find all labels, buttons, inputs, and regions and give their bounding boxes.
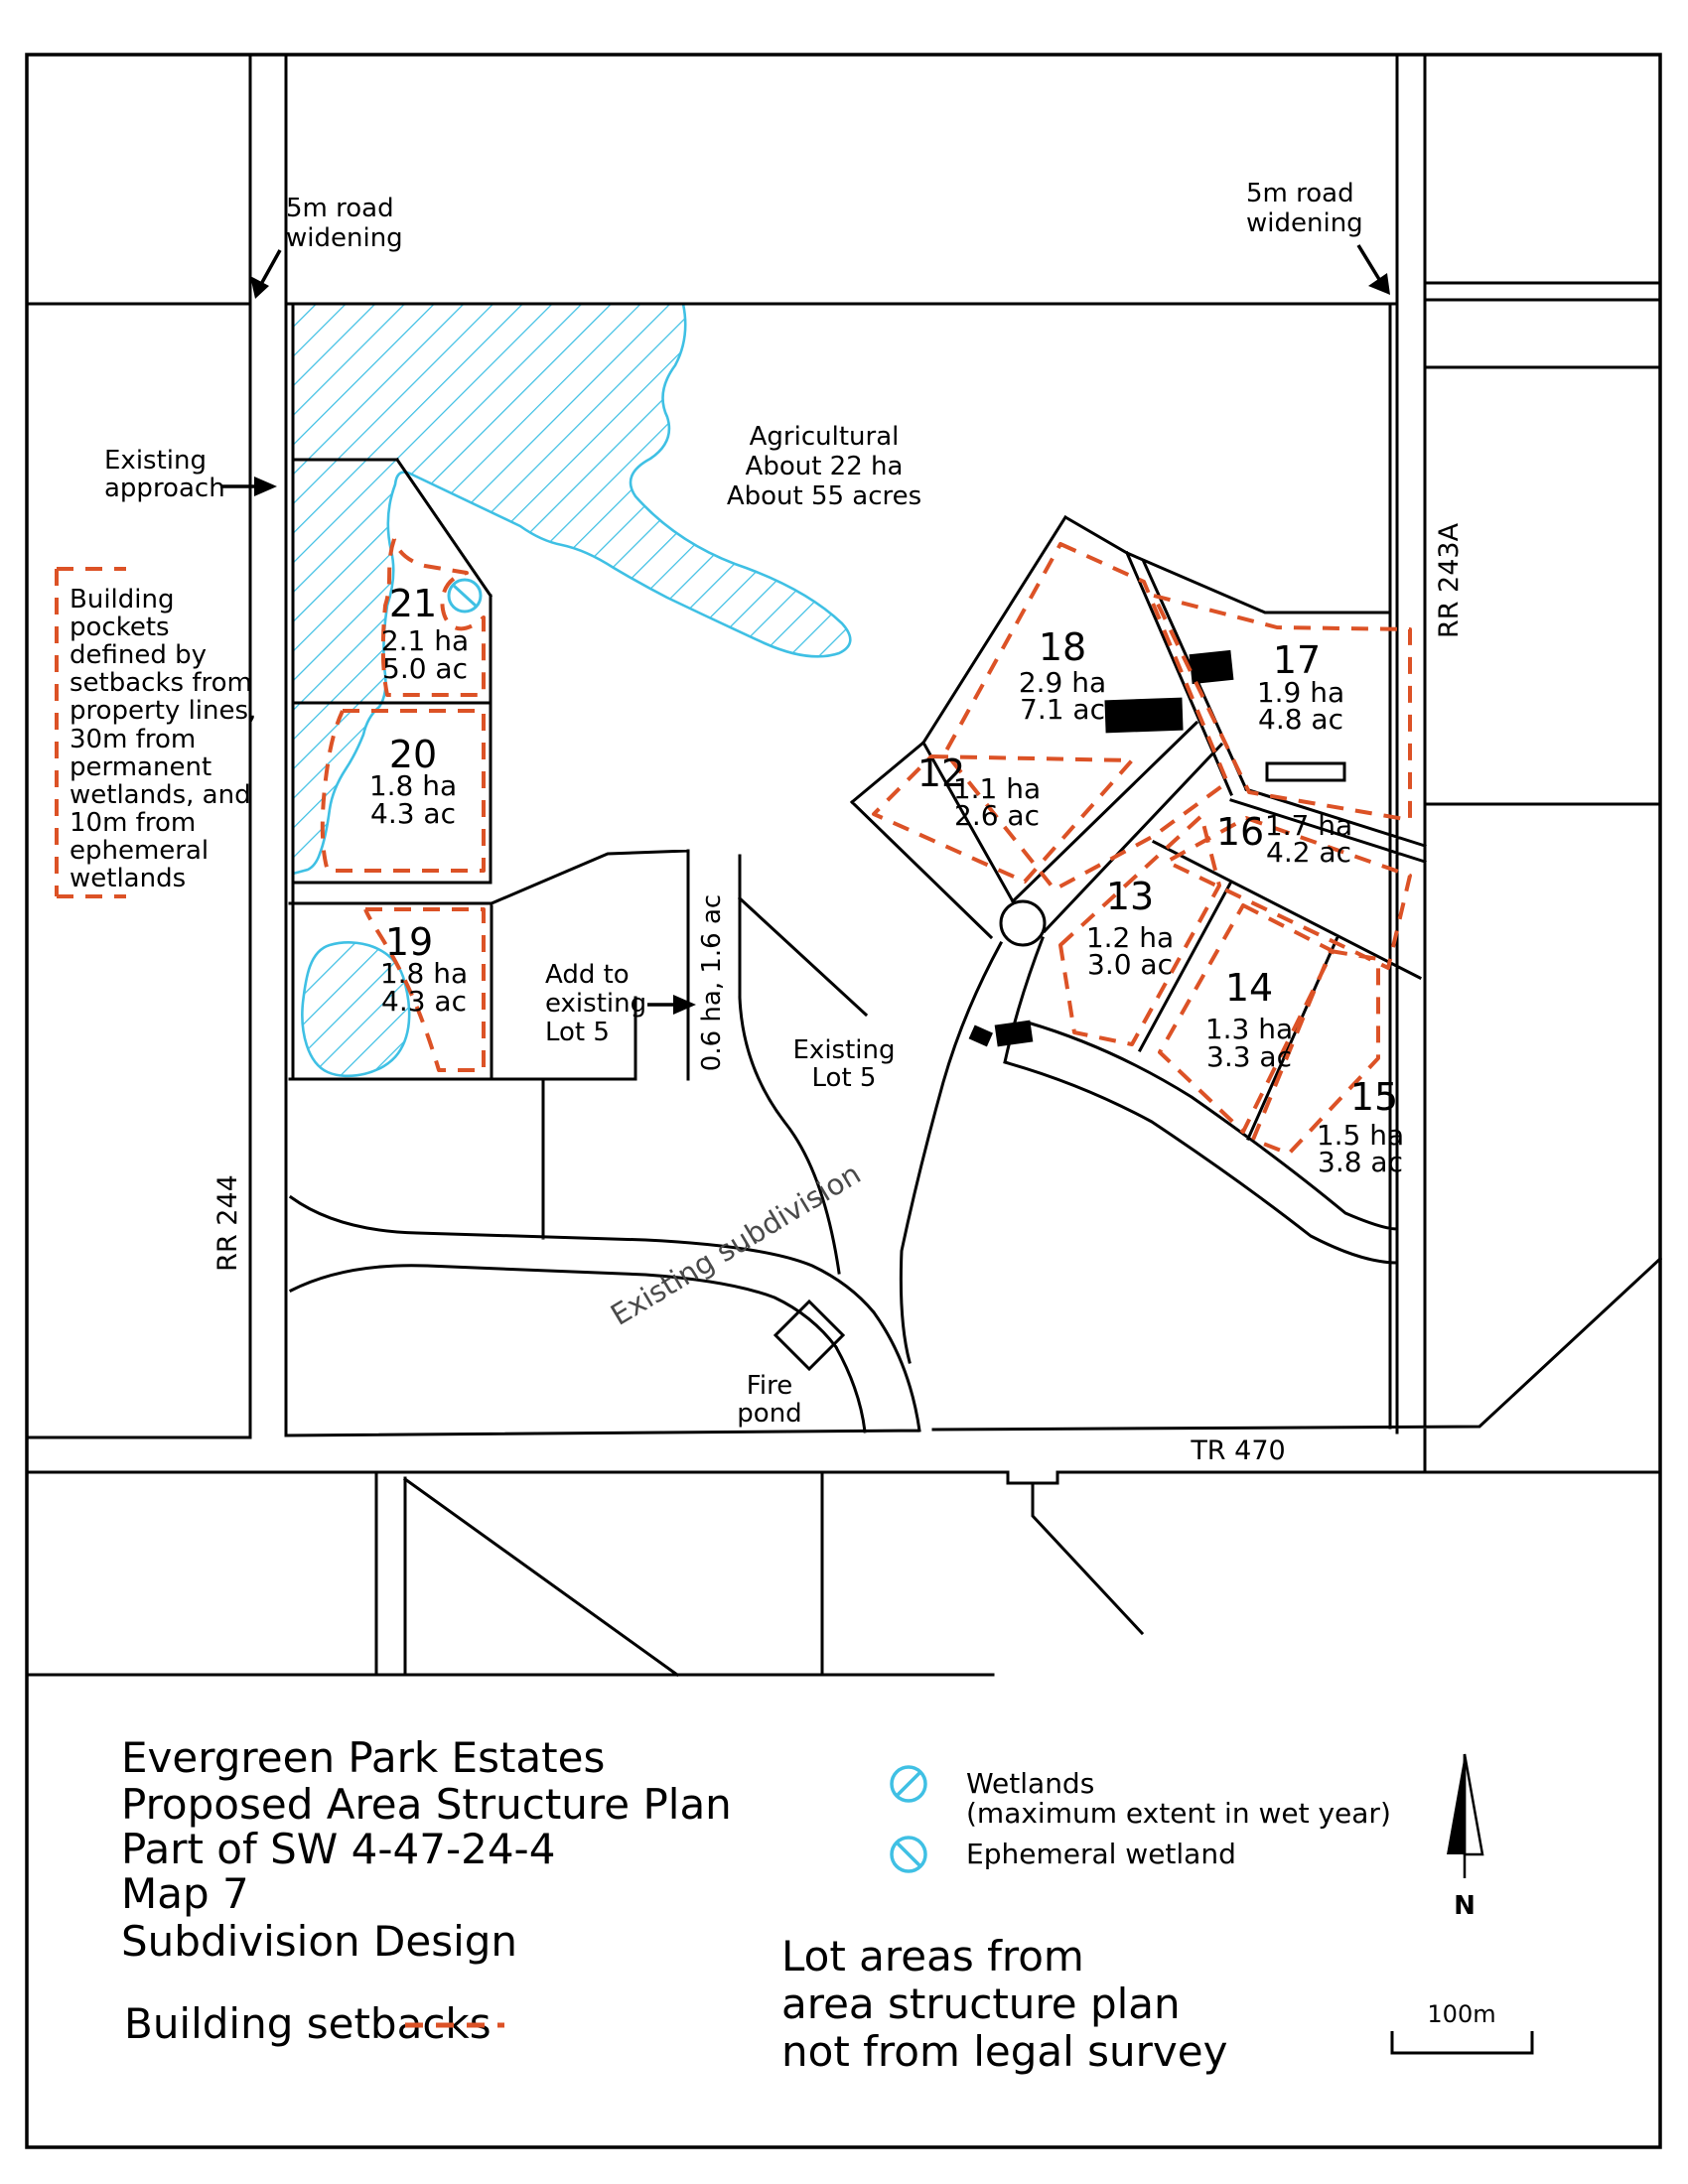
lot-labels: 21 2.1 ha 5.0 ac 20 1.8 ha 4.3 ac 19 1.8… [369,582,1404,1178]
agricultural-line1: Agricultural [750,422,900,452]
pockets-note-l11: wetlands [70,864,186,893]
lot-16-ac: 4.2 ac [1266,836,1351,869]
building-lot18-small [1190,650,1234,684]
building-lot18-large [1104,698,1183,734]
title-line3: Part of SW 4-47-24-4 [121,1825,555,1873]
road-widening-left-line2: widening [286,223,403,253]
road-label-tr470: TR 470 [1190,1435,1285,1466]
lot-20-ac: 4.3 ac [370,797,456,830]
fire-pond-line1: Fire [747,1371,792,1401]
title-line2: Proposed Area Structure Plan [121,1780,732,1829]
building-lot5-b [995,1021,1034,1047]
lot-18-ac: 7.1 ac [1020,693,1105,726]
pockets-note-l2: pockets [70,613,170,642]
lot-14-label: 14 1.3 ha 3.3 ac [1205,966,1293,1073]
lot-areas-note-line3: not from legal survey [781,2027,1227,2076]
lot-12-label: 12 1.1 ha 2.6 ac [917,751,1041,832]
road-widening-left-arrowhead [250,276,269,299]
north-arrow-filled-half [1447,1754,1465,1854]
north-arrow: N [1447,1754,1482,1921]
legend: Wetlands (maximum extent in wet year) Ep… [892,1767,1391,1871]
pockets-note-l7: permanent [70,752,211,782]
building-lot5-a [969,1025,993,1047]
fire-pond-outline [775,1301,843,1369]
lot-areas-note: Lot areas from area structure plan not f… [781,1932,1227,2076]
lot-13-label: 13 1.2 ha 3.0 ac [1086,875,1174,981]
pockets-note-l5: property lines, [70,696,256,726]
agricultural-line3: About 55 acres [727,481,921,511]
road-widening-right-line1: 5m road [1246,179,1354,208]
title-line4: Map 7 [121,1869,249,1918]
road-and-boundary-lines [27,55,1660,1675]
existing-approach-line2: approach [104,474,225,503]
pockets-note-l10: ephemeral [70,836,209,866]
lot-areas-note-line1: Lot areas from [781,1932,1084,1980]
pockets-note-l8: wetlands, and [70,780,251,810]
road-label-rr243a: RR 243A [1434,522,1465,638]
title-block: Evergreen Park Estates Proposed Area Str… [121,1733,732,2048]
existing-lot5-line2: Lot 5 [812,1063,877,1093]
road-widening-right-line2: widening [1246,208,1363,238]
pockets-note-l6: 30m from [70,725,196,754]
existing-subdivision-label: Existing subdivision [605,1157,866,1332]
add-to-lot5-line2: existing [545,989,646,1019]
add-to-lot5-arrowhead [673,995,696,1015]
lot-13-ac: 3.0 ac [1087,948,1173,981]
road-widening-left-line1: 5m road [286,194,394,223]
agricultural-line2: About 22 ha [746,452,904,481]
lot-17-ac: 4.8 ac [1258,703,1343,736]
building-pockets-note: Building pockets defined by setbacks fro… [70,585,256,893]
lot-15-number: 15 [1350,1075,1398,1119]
existing-approach-line1: Existing [104,446,207,476]
ephemeral-wetland-icon-lot21 [449,580,481,612]
lot-14-ac: 3.3 ac [1206,1040,1292,1073]
lot-19-ac: 4.3 ac [381,985,467,1018]
scale-bar-label: 100m [1427,2000,1495,2028]
lot-16-label: 16 1.7 ha 4.2 ac [1216,809,1352,869]
legend-wetlands-line1: Wetlands [966,1767,1094,1800]
existing-lot5-line1: Existing [793,1035,896,1065]
lot-areas-note-line2: area structure plan [781,1979,1181,2028]
lot-20-label: 20 1.8 ha 4.3 ac [369,733,457,830]
road-label-rr244: RR 244 [212,1174,243,1272]
lot-18-number: 18 [1039,625,1086,669]
legend-ephemeral-label: Ephemeral wetland [966,1838,1236,1870]
lot5-strip-area-label: 0.6 ha, 1.6 ac [697,894,727,1071]
lot-18-label: 18 2.9 ha 7.1 ac [1019,625,1106,726]
fire-pond-line2: pond [737,1399,801,1429]
lot-19-label: 19 1.8 ha 4.3 ac [380,920,468,1018]
plan-sheet: 5m road widening 5m road widening Existi… [0,0,1688,2184]
scale-bar-bracket [1392,2031,1532,2053]
lot-17-label: 17 1.9 ha 4.8 ac [1257,638,1344,736]
lot-21-number: 21 [389,582,437,625]
lot-12-ac: 2.6 ac [954,799,1040,832]
pockets-note-l1: Building [70,585,174,614]
ephemeral-wetland-icon [892,1838,925,1871]
lot-16-number: 16 [1216,810,1264,854]
pockets-note-l3: defined by [70,640,207,670]
lot-13-number: 13 [1106,875,1154,918]
pockets-note-l4: setbacks from [70,668,252,698]
lot-21-ac: 5.0 ac [382,652,468,685]
scale-bar: 100m [1392,2000,1532,2053]
lot-15-ac: 3.8 ac [1318,1146,1403,1178]
pockets-note-l9: 10m from [70,808,196,838]
north-label: N [1454,1891,1476,1921]
legend-wetlands-line2: (maximum extent in wet year) [966,1797,1391,1830]
road-widening-left-arrow [260,250,280,286]
north-arrow-outline-half [1465,1754,1482,1854]
lot-14-number: 14 [1225,966,1273,1010]
title-line1: Evergreen Park Estates [121,1733,605,1782]
title-line5: Subdivision Design [121,1917,517,1966]
existing-approach-arrowhead [254,477,277,496]
building-lot17-outline [1267,763,1344,780]
map-svg: 5m road widening 5m road widening Existi… [0,0,1688,2184]
add-to-lot5-line3: Lot 5 [545,1018,610,1047]
lot-15-label: 15 1.5 ha 3.8 ac [1317,1075,1404,1178]
add-to-lot5-line1: Add to [545,960,630,990]
road-widening-right-arrow [1358,245,1380,281]
wetlands-icon [892,1767,925,1801]
cul-de-sac-bulb [1001,901,1045,945]
